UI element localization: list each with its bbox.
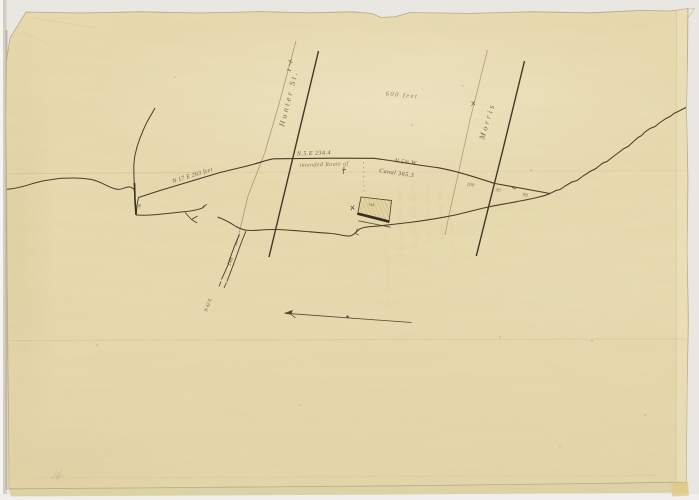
svg-text:144: 144	[368, 202, 375, 208]
svg-text:N.5.E 234.4: N.5.E 234.4	[296, 149, 331, 157]
svg-text:vm nuv wim: vm nuv wim	[436, 188, 448, 241]
svg-text:mwe vimr un: mwe vimr un	[423, 186, 435, 244]
